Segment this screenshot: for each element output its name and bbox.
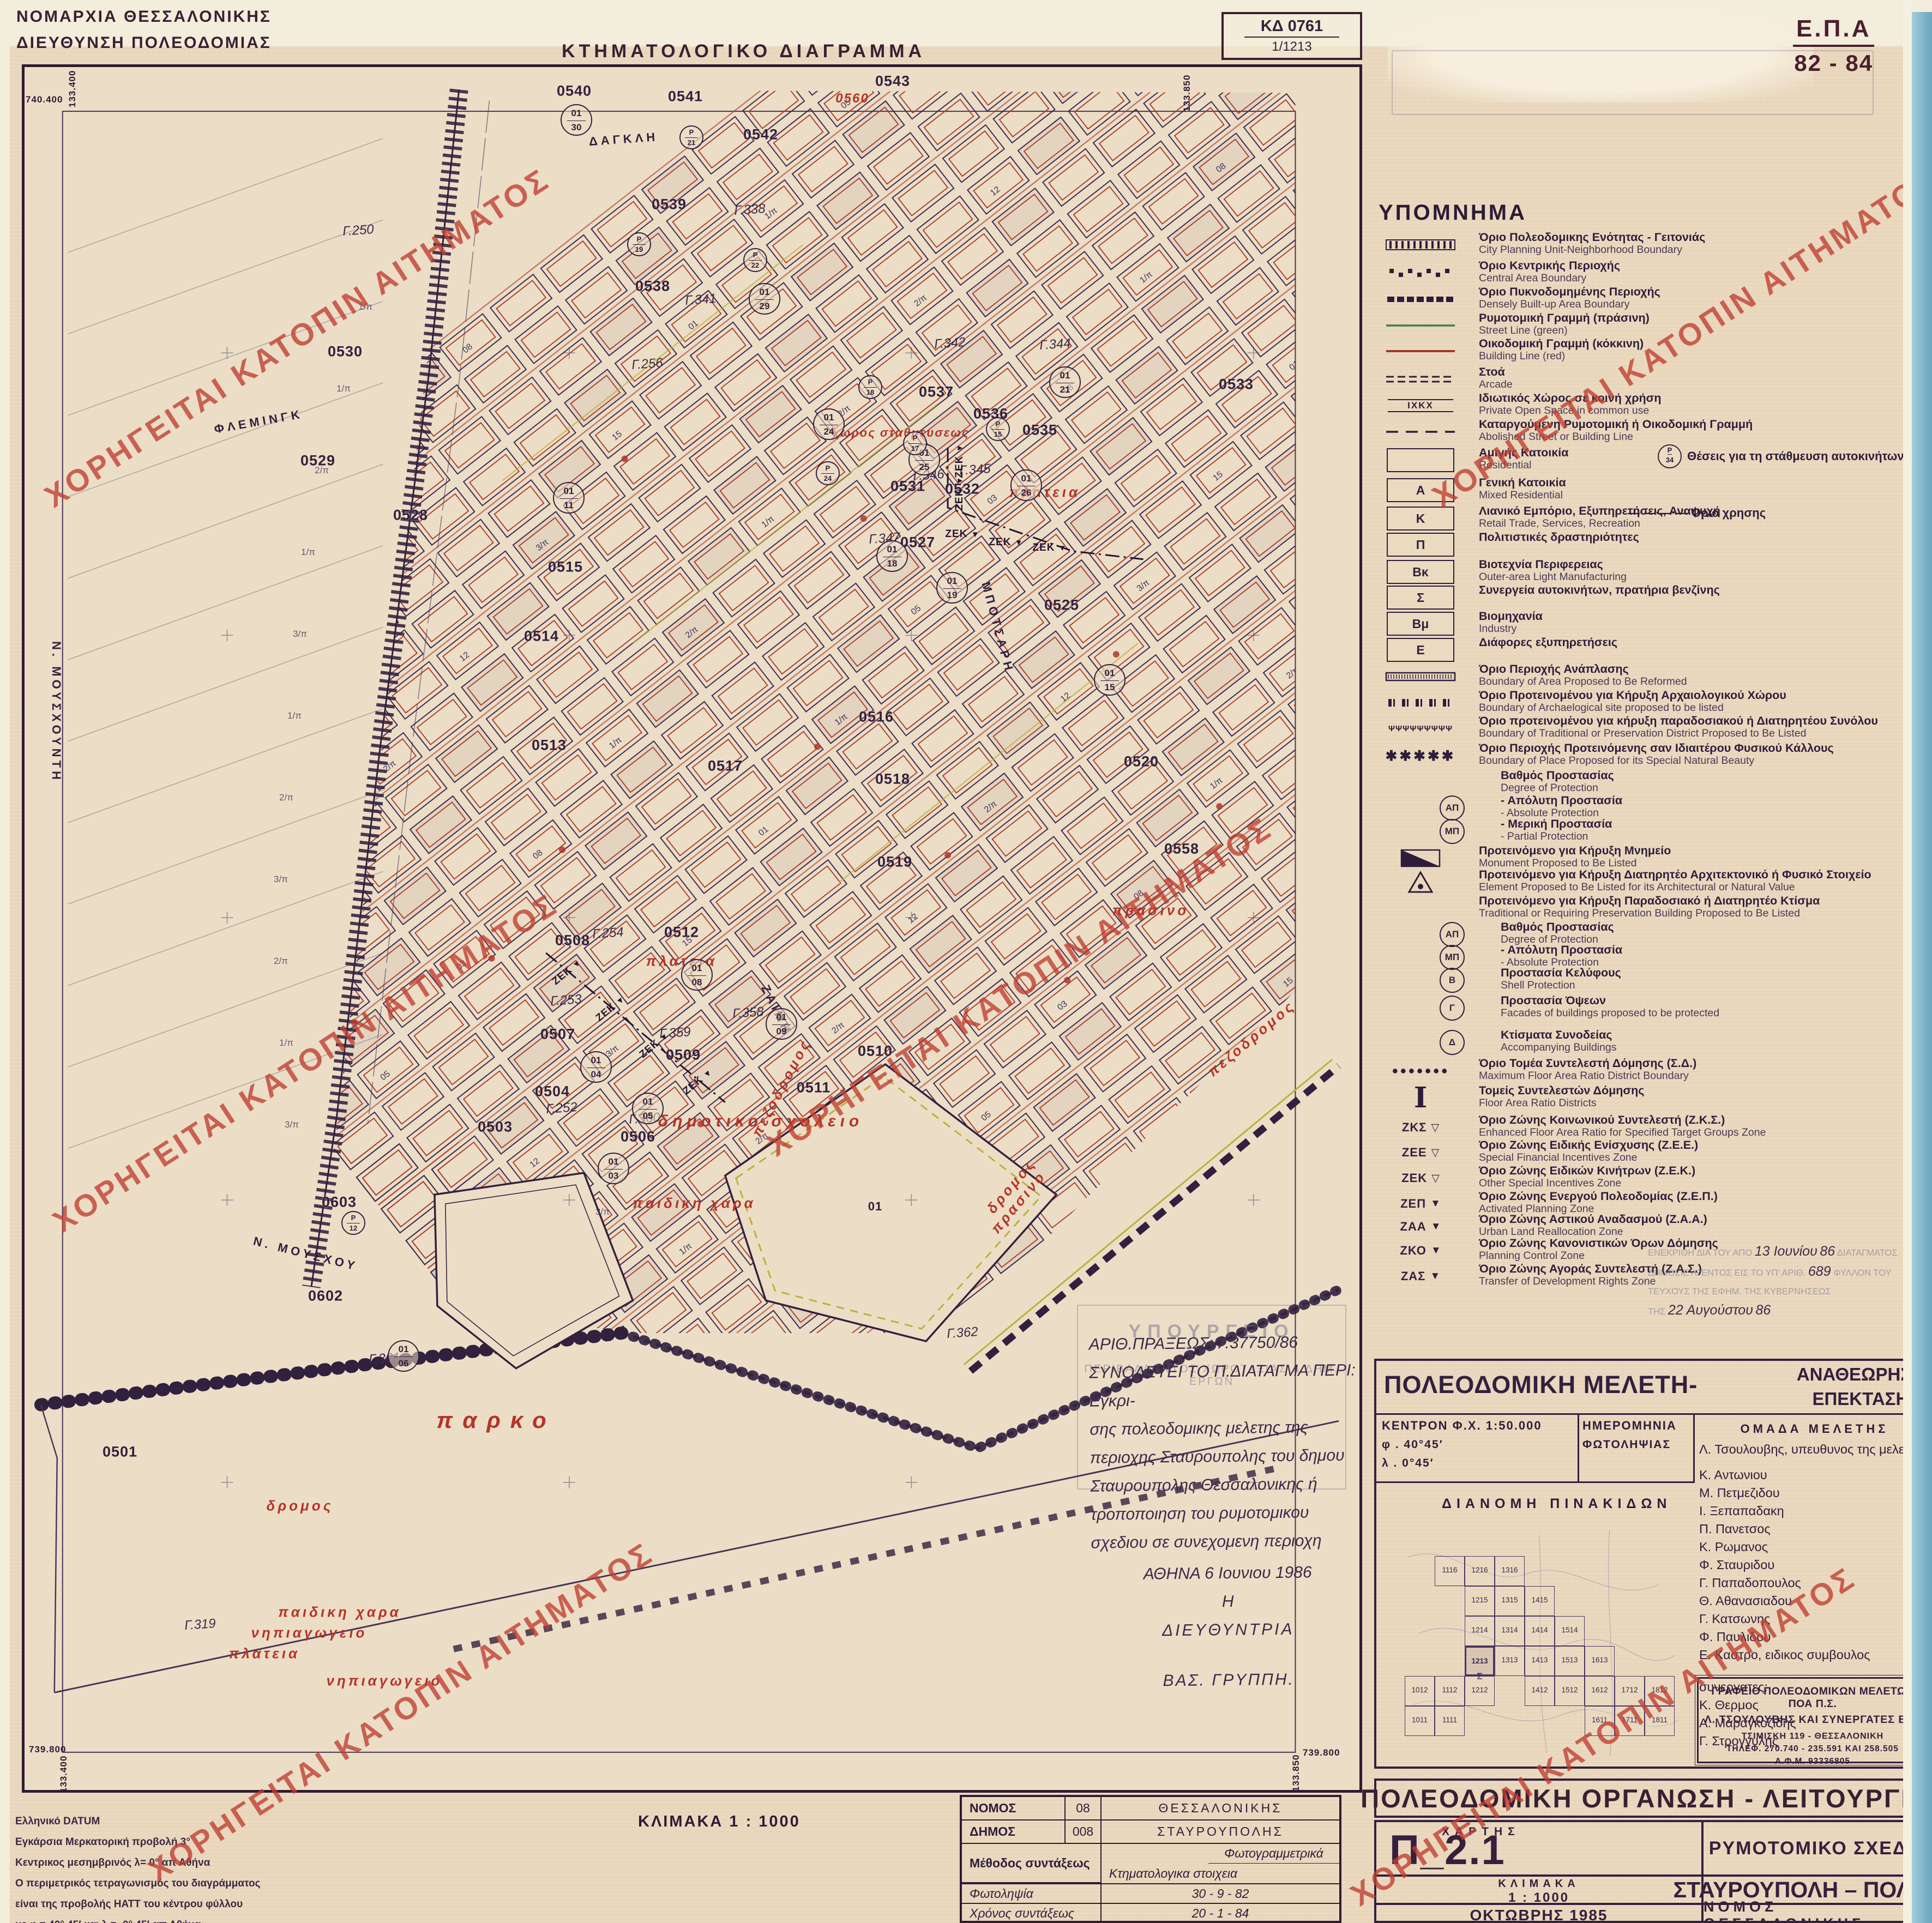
legend-symbol bbox=[1374, 665, 1467, 689]
parking-badge-top: P bbox=[864, 377, 877, 388]
legend-english-text: Building Line (red) bbox=[1479, 350, 1915, 363]
study-phi: φ . 40°45′ bbox=[1382, 1438, 1572, 1451]
red-map-label: χωρος σταθμευσεως bbox=[833, 426, 970, 440]
legend-greek-text: Γενική Κατοικία bbox=[1479, 476, 1915, 489]
legend-symbol bbox=[1374, 261, 1467, 285]
parking-badge-top: P bbox=[821, 463, 834, 474]
far-ratio-badge-top: 01 bbox=[587, 1053, 605, 1068]
parking-badge-bottom: 19 bbox=[628, 245, 650, 254]
corner-coord-bottom-northing-right: 739.800 bbox=[1303, 1747, 1340, 1758]
block-label: 0512 bbox=[664, 924, 699, 941]
agency-line-1: ΝΟΜΑΡΧΙΑ ΘΕΣΣΑΛΟΝΙΚΗΣ bbox=[16, 8, 272, 26]
block-label: 0503 bbox=[478, 1119, 513, 1136]
index-tile: 1111 bbox=[1435, 1706, 1465, 1736]
corner-coord-left-easting: 133.400 bbox=[67, 70, 78, 107]
far-ratio-badge-bottom: 08 bbox=[682, 976, 712, 989]
parking-badge-top: P bbox=[908, 433, 922, 444]
agency-line-2: ΔΙΕΥΘΥΝΣΗ ΠΟΛΕΟΔΟΜΙΑΣ bbox=[16, 34, 272, 52]
legend-greek-text: Κτίσματα Συνοδείας bbox=[1501, 1028, 1932, 1041]
kd-sub-number: 1/1213 bbox=[1224, 38, 1360, 58]
legend-symbol: ΖΚΣ▽ bbox=[1374, 1116, 1467, 1140]
index-tile: 1612 bbox=[1585, 1676, 1615, 1706]
legend-circle-symbol: ΑΠ bbox=[1440, 922, 1465, 947]
far-ratio-badge-top: 01 bbox=[688, 961, 706, 976]
map-frame: 1/π2/π3/π0105082/π12151/π031/π2/π3/π0105… bbox=[22, 64, 1362, 1793]
surveyor-g-number: Γ.256 bbox=[631, 355, 663, 373]
legend-zone-label: ΖΑΣ bbox=[1401, 1269, 1426, 1283]
legend-circle-symbol: Γ bbox=[1440, 996, 1465, 1021]
far-ratio-badge-top: 01 bbox=[1100, 666, 1119, 681]
legend-entry-text: Όριο προτεινομένου για κήρυξη παραδοσιακ… bbox=[1479, 714, 1915, 740]
surveyor-g-number: Γ.319 bbox=[184, 1616, 216, 1633]
far-ratio-badge-bottom: 18 bbox=[877, 557, 907, 570]
legend-entry-text: Προστασία ΌψεωνFacades of buildings prop… bbox=[1501, 994, 1932, 1020]
parking-badge: P15 bbox=[986, 417, 1010, 441]
legend-greek-text: Βαθμός Προστασίας bbox=[1501, 920, 1932, 933]
tile-index-label: ΔΙΑΝΟΜΗ ΠΙΝΑΚΙΔΩΝ bbox=[1442, 1496, 1671, 1512]
school-parcel-number: 01 bbox=[868, 1199, 882, 1214]
legend-greek-text: Ιδιωτικός Χώρος σε κοινή χρήση bbox=[1479, 391, 1915, 405]
legend-zone-label: ΖΑΑ bbox=[1400, 1220, 1426, 1234]
legend-circle-symbol: Δ bbox=[1440, 1030, 1465, 1055]
team-member: Φ. Σταυριδου bbox=[1699, 1556, 1932, 1574]
zek-zone-mark: ΖΕΚ ▼ bbox=[550, 956, 585, 987]
legend-greek-text: Τομείς Συντελεστών Δόμησης bbox=[1479, 1084, 1915, 1097]
legend-symbol: ΙΧΚΧ bbox=[1374, 394, 1467, 418]
far-ratio-badge-top: 01 bbox=[604, 1155, 623, 1170]
legend-greek-text: Όριο Ζώνης Ειδικών Κινήτρων (Ζ.Ε.Κ.) bbox=[1479, 1164, 1915, 1177]
info-photo-value: 30 - 9 - 82 bbox=[1102, 1883, 1339, 1903]
block-label: 0501 bbox=[103, 1444, 137, 1461]
far-ratio-badge-top: 01 bbox=[820, 411, 838, 425]
block-label: 0602 bbox=[308, 1288, 343, 1305]
block-label: 0540 bbox=[557, 83, 592, 100]
legend-greek-text: Βιοτεχνία Περιφερειας bbox=[1479, 558, 1915, 571]
surveyor-g-number: Γ.342 bbox=[934, 335, 966, 352]
parking-icon-number: 34 bbox=[1666, 456, 1674, 464]
legend-title: ΥΠΟΜΝΗΜΑ bbox=[1379, 201, 1527, 225]
block-label: 0515 bbox=[548, 559, 583, 576]
red-map-label: παρκο bbox=[436, 1407, 556, 1433]
date-cell: ΟΚΤΩΒΡΗΣ 1985 bbox=[1376, 1905, 1704, 1923]
legend-greek-text: Όριο Ζώνης Αστικού Αναδασμού (Ζ.Α.Α.) bbox=[1479, 1213, 1915, 1226]
legend-english-text: Facades of buildings proposed to be prot… bbox=[1501, 1007, 1932, 1020]
legend-english-text: Mixed Residential bbox=[1479, 489, 1915, 502]
legend-english-text: Maximum Floor Area Ratio District Bounda… bbox=[1479, 1070, 1915, 1082]
office-line: ΓΡΑΦΕΙΟ ΠΟΛΕΟΔΟΜΙΚΩΝ ΜΕΛΕΤΩΝ ΠΟΑ Π.Σ. bbox=[1699, 1685, 1927, 1710]
parking-badge-top: P bbox=[633, 234, 646, 245]
street-name: Ν. ΜΟΥΣΧΟΥΝΤΗ bbox=[49, 641, 63, 783]
legend-circle-symbol: ΜΠ bbox=[1440, 819, 1465, 844]
legend-symbol bbox=[1374, 896, 1467, 920]
legend-entry-text: Όριο Ζώνης Κοινωνικού Συντελεστή (Ζ.Κ.Σ.… bbox=[1479, 1113, 1915, 1139]
legend-entry-text: Όριο Πυκνοδομημένης ΠεριοχήςDensely Buil… bbox=[1479, 285, 1915, 311]
legend-entry-text: Όριο Περιοχής ΑνάπλασηςBoundary of Area … bbox=[1479, 662, 1915, 688]
far-ratio-badge-bottom: 09 bbox=[767, 1025, 796, 1038]
parking-icon-letter: P bbox=[1668, 446, 1672, 455]
far-ratio-badge-bottom: 25 bbox=[910, 461, 939, 474]
surveyor-g-number: Γ.362 bbox=[946, 1324, 978, 1342]
legend-box-symbol: Βκ bbox=[1387, 560, 1454, 584]
red-map-label: πλατεια bbox=[229, 1645, 300, 1662]
index-tile: 1415 bbox=[1525, 1586, 1555, 1616]
far-ratio-badge: 0115 bbox=[1094, 664, 1126, 696]
legend-symbol: Δ bbox=[1406, 1030, 1498, 1054]
zek-arrow-icon: ▼ bbox=[615, 994, 627, 1007]
stamp-handwritten-year2: 86 bbox=[1756, 1303, 1771, 1318]
study-header: ΠΟΛΕΟΔΟΜΙΚΗ ΜΕΛΕΤΗ- ΑΝΑΘΕΩΡΗΣΗ ΕΠΕΚΤΑΣΗ bbox=[1376, 1361, 1930, 1415]
index-tile: 1315 bbox=[1495, 1586, 1525, 1616]
kd-number: ΚΔ 0761 bbox=[1244, 17, 1339, 38]
parking-badge: P22 bbox=[743, 248, 767, 272]
legend-entry-text: Όριο Περιοχής Προτεινόμενης σαν Ιδιαιτέρ… bbox=[1479, 742, 1915, 767]
legend-entry-text: Προτεινόμενο για Κήρυξη Διατηρητέο Αρχιτ… bbox=[1479, 868, 1915, 894]
parcel-mark: 3/π bbox=[293, 629, 307, 640]
zek-zone-mark: ΖΕΚ ▼ bbox=[954, 476, 966, 510]
legend-greek-text: Όριο Περιοχής Ανάπλασης bbox=[1479, 662, 1915, 676]
parking-badge-top: P bbox=[685, 128, 698, 138]
block-label: 0514 bbox=[524, 628, 559, 645]
legend-box-symbol: Σ bbox=[1387, 586, 1454, 610]
parking-badge-bottom: 12 bbox=[342, 1223, 364, 1233]
legend-entry-text: ΒιομηχανίαIndustry bbox=[1479, 610, 1915, 635]
block-label: 0507 bbox=[540, 1026, 575, 1043]
index-tile: 1314 bbox=[1495, 1616, 1525, 1646]
legend-english-text: Boundary of Place Proposed for its Speci… bbox=[1479, 755, 1915, 767]
legend-greek-text: Προστασία Κελύφους bbox=[1501, 966, 1932, 979]
epa-label: Ε.Π.Α bbox=[1793, 15, 1874, 47]
legend-box-symbol: Ε bbox=[1387, 638, 1454, 662]
legend-entry-text: Κτίσματα ΣυνοδείαςAccompanying Buildings bbox=[1501, 1028, 1932, 1054]
handwritten-approval-note: ΑΡΙΘ.ΠΡΑΞΕΩΣ: Γ.37750/86 ΣΥΝΟΔΕΥΕΙ ΤΟ Π.… bbox=[1089, 1328, 1365, 1696]
info-dimos-value: ΣΤΑΥΡΟΥΠΟΛΗΣ bbox=[1102, 1820, 1339, 1844]
legend-english-text: Degree of Protection bbox=[1501, 782, 1932, 794]
epa-box: Ε.Π.Α 82 - 84 bbox=[1793, 15, 1874, 76]
zek-zone-mark: ΖΕΚ ▼ bbox=[594, 993, 628, 1024]
office-line: Α.Φ.Μ. 93336805 bbox=[1699, 1757, 1927, 1767]
far-ratio-badge: 0111 bbox=[553, 482, 585, 514]
prefecture-cell: ΝΟΜΟΣ ΘΕΣΣΑΛΟΝΙΚΗΣ bbox=[1704, 1905, 1932, 1923]
office-line: ΤΣΙΜΙΣΚΗ 119 - ΘΕΣΣΑΛΟΝΙΚΗ bbox=[1699, 1732, 1927, 1741]
legend-english-text: Traditional or Requiring Preservation Bu… bbox=[1479, 907, 1915, 920]
legend-greek-text: Βιομηχανία bbox=[1479, 610, 1915, 623]
legend-zone-label: ΖΚΣ bbox=[1402, 1120, 1427, 1135]
stamp-text: ΦΥΛΛΟΝ ΤΟΥ bbox=[1833, 1268, 1891, 1278]
datum-line: με φ = 40° 45′ και λ = -0° 45′ απ Αθήνα bbox=[15, 1915, 261, 1923]
zone-arrow-icon: ▼ bbox=[1431, 1221, 1441, 1233]
stamp-handwritten-date2: 22 Αυγούστου bbox=[1668, 1303, 1753, 1318]
legend-symbol: Γ bbox=[1406, 996, 1498, 1020]
parcel-mark: 1/π bbox=[287, 710, 302, 721]
note-body: ΑΡΙΘ.ΠΡΑΞΕΩΣ: Γ.37750/86 ΣΥΝΟΔΕΥΕΙ ΤΟ Π.… bbox=[1089, 1328, 1364, 1557]
datum-line: Κεντρικος μεσημβρινός λ= 0° απ Αθήνα bbox=[15, 1853, 261, 1873]
parcel-mark: 3/π bbox=[274, 874, 288, 885]
far-ratio-badge: 0104 bbox=[580, 1051, 612, 1083]
parcel-mark: 1/π bbox=[336, 383, 351, 394]
study-date-label-2: ΦΩΤΟΛΗΨΙΑΣ bbox=[1582, 1438, 1690, 1451]
stamp-text: ΔΙΑΤΑΓΜΑΤΟΣ bbox=[1837, 1248, 1898, 1258]
zone-arrow-icon: ▼ bbox=[1431, 1245, 1441, 1257]
legend-english-text: Arcade bbox=[1479, 378, 1915, 391]
zek-zone-mark: ΖΕΚ ▼ bbox=[989, 536, 1023, 548]
far-ratio-badge-top: 01 bbox=[559, 484, 578, 499]
legend-greek-text: Προτεινόμενο για Κήρυξη Διατηρητέο Αρχιτ… bbox=[1479, 868, 1915, 881]
zek-zone-mark: ΖΕΚ ▼ bbox=[1032, 542, 1067, 554]
legend-greek-text: Όριο Ζώνης Ειδικής Ενίσχυσης (Ζ.Ε.Ε.) bbox=[1479, 1138, 1915, 1152]
far-ratio-badge: 0105 bbox=[632, 1093, 664, 1124]
index-tile: 1413 bbox=[1525, 1646, 1555, 1676]
parking-badge-top: P bbox=[749, 250, 762, 261]
parking-icon: P 34 bbox=[1658, 444, 1682, 468]
block-label: 0530 bbox=[328, 343, 363, 360]
note-place-date: ΑΘΗΝΑ 6 Ιουνιου 1986 bbox=[1091, 1558, 1364, 1589]
legend-entry-text: Γενική ΚατοικίαMixed Residential bbox=[1479, 476, 1915, 502]
index-tile: 1213Σ bbox=[1465, 1646, 1495, 1676]
scanned-map-sheet: ΝΟΜΑΡΧΙΑ ΘΕΣΣΑΛΟΝΙΚΗΣ ΔΙΕΥΘΥΝΣΗ ΠΟΛΕΟΔΟΜ… bbox=[0, 0, 1932, 1923]
legend-box-symbol: Π bbox=[1387, 533, 1454, 557]
stamp-text: ΔΗΜΟΣΙΕΥΘΕΝΤΟΣ ΕΙΣ ΤΟ ΥΠ' ΑΡΙΘ. bbox=[1648, 1268, 1805, 1278]
block-label: 0519 bbox=[877, 854, 912, 871]
parking-badge: P19 bbox=[627, 232, 651, 256]
team-member: Λ. Τσουλουβης, υπευθυνος της μελετης bbox=[1699, 1440, 1932, 1458]
legend-english-text: - Partial Protection bbox=[1501, 830, 1932, 843]
legend-symbol: I bbox=[1374, 1086, 1467, 1110]
zek-arrow-icon: ▼ bbox=[955, 443, 965, 452]
legend-english-text: Boundary of Archaelogical site proposed … bbox=[1479, 702, 1915, 714]
legend-english-text: Boundary of Traditional or Preservation … bbox=[1479, 727, 1915, 740]
street-name: ΦΛΕΜΙΝΓΚ bbox=[213, 407, 304, 437]
legend-symbol bbox=[1374, 314, 1467, 337]
stamp-text: ΕΝΕΚΡΙΘΗ ΔΙΑ ΤΟΥ ΑΠΟ bbox=[1648, 1248, 1752, 1258]
index-tile: 1514 bbox=[1555, 1616, 1585, 1646]
index-tile: 1216 bbox=[1465, 1556, 1495, 1586]
legend-symbol: ΑΠ bbox=[1406, 796, 1498, 820]
index-tile: 1212 bbox=[1465, 1676, 1495, 1706]
legend-entry-text: Βαθμός ΠροστασίαςDegree of Protection bbox=[1501, 920, 1932, 946]
legend-entry-text: - Απόλυτη Προστασία- Absolute Protection bbox=[1501, 943, 1932, 969]
index-tile: 1414 bbox=[1525, 1616, 1555, 1646]
office-line: Λ. ΤΣΟΥΛΟΥΒΗΣ ΚΑΙ ΣΥΝΕΡΓΑΤΕΣ Ε.Ε. bbox=[1699, 1714, 1927, 1726]
legend-entry-text: Όριο Ζώνης Ειδικής Ενίσχυσης (Ζ.Ε.Ε.)Spe… bbox=[1479, 1138, 1915, 1164]
legend-symbol: ΜΠ bbox=[1406, 819, 1498, 843]
scale-cell: ΚΛΙΜΑΚΑ 1 : 1000 bbox=[1376, 1877, 1704, 1905]
legend-symbol: ΖΑΑ▼ bbox=[1374, 1215, 1467, 1239]
team-member: Μ. Πετμεζιδου bbox=[1699, 1484, 1932, 1502]
zek-arrow-icon: ▼ bbox=[955, 476, 965, 485]
zek-arrow-icon: ▼ bbox=[971, 530, 980, 539]
legend-symbol: Βμ bbox=[1374, 612, 1467, 636]
corner-coord-bottom-northing-left: 739.800 bbox=[29, 1744, 66, 1755]
block-label: 0509 bbox=[666, 1047, 701, 1064]
block-label: 0520 bbox=[1124, 753, 1159, 770]
legend-entry-text: - Απόλυτη Προστασία- Absolute Protection bbox=[1501, 794, 1932, 819]
legend-english-text: Central Area Boundary bbox=[1479, 272, 1915, 285]
corner-coord-top-northing: 740.400 bbox=[26, 94, 63, 105]
legend-entry-text: Όριο Κεντρικής ΠεριοχήςCentral Area Boun… bbox=[1479, 259, 1915, 285]
far-ratio-badge-bottom: 29 bbox=[750, 300, 779, 313]
legend-symbol: ✱✱✱✱✱ bbox=[1374, 744, 1467, 768]
plan-type-cell: ΡΥΜΟΤΟΜΙΚΟ ΣΧΕΔΙΟ bbox=[1704, 1822, 1932, 1877]
far-ratio-badge-top: 01 bbox=[755, 285, 774, 300]
far-ratio-badge-bottom: 11 bbox=[554, 499, 583, 512]
legend-english-text: Element Proposed to Be Listed for its Ar… bbox=[1479, 881, 1915, 894]
legend-symbol: Π bbox=[1374, 533, 1467, 557]
legend-symbol: ΑΠ bbox=[1406, 923, 1498, 947]
far-ratio-badge: 0109 bbox=[766, 1008, 797, 1040]
legend-symbol bbox=[1374, 367, 1467, 391]
legend-english-text: Special Financial Incentives Zone bbox=[1479, 1152, 1915, 1164]
parking-note-text: Θέσεις για τη στάθμευση αυτοκινήτων bbox=[1687, 449, 1904, 463]
legend-symbol bbox=[1374, 287, 1467, 311]
stamp-handwritten-date: 13 Ιουνίου bbox=[1755, 1244, 1817, 1259]
legend-english-text: Other Special Incentives Zone bbox=[1479, 1177, 1915, 1190]
red-map-label: παιδικη χαρα bbox=[278, 1604, 401, 1621]
red-map-label: πεζοδρομος bbox=[1205, 997, 1299, 1080]
block-label: 0517 bbox=[708, 758, 743, 775]
legend-entry-text: Προτεινόμενο για Κήρυξη ΜνημείοMonument … bbox=[1479, 844, 1915, 870]
index-tile: 1116 bbox=[1435, 1556, 1465, 1586]
legend-symbol: ΖΕΚ▽ bbox=[1374, 1166, 1467, 1190]
far-ratio-badge-top: 01 bbox=[567, 106, 586, 121]
legend-symbol: Βκ bbox=[1374, 560, 1467, 584]
block-label: 0528 bbox=[393, 507, 428, 524]
study-lambda: λ . 0°45′ bbox=[1382, 1457, 1572, 1470]
block-label: 0543 bbox=[875, 73, 910, 90]
surveyor-g-number: Γ.253 bbox=[550, 992, 582, 1009]
surveyor-g-number: Γ.250 bbox=[342, 222, 374, 239]
zek-zone-mark: ΖΕΚ ▼ bbox=[954, 443, 966, 478]
parking-badge: P21 bbox=[679, 125, 703, 149]
parking-badge: P17 bbox=[903, 431, 927, 455]
legend-entry-text: Βαθμός ΠροστασίαςDegree of Protection bbox=[1501, 769, 1932, 794]
zek-zone-mark: ΖΕΚ ▼ bbox=[945, 528, 979, 540]
scale-label: ΚΛΙΜΑΚΑ bbox=[1376, 1878, 1701, 1890]
block-label: 0518 bbox=[875, 771, 910, 788]
legend-greek-text: Συνεργεία αυτοκινήτων, πρατήρια βενζίνης bbox=[1479, 583, 1915, 596]
zek-arrow-icon: ▼ bbox=[571, 958, 583, 970]
parking-badge-top: P bbox=[347, 1213, 360, 1223]
legend-box-symbol bbox=[1387, 448, 1454, 472]
legend-symbol: ΖΕΠ▼ bbox=[1374, 1192, 1467, 1216]
parking-badge-bottom: 17 bbox=[904, 444, 926, 453]
index-tile: 1112 bbox=[1435, 1676, 1465, 1706]
survey-info-table: ΝΟΜΟΣ 08 ΘΕΣΣΑΛΟΝΙΚΗΣ ΔΗΜΟΣ 008 ΣΤΑΥΡΟΥΠ… bbox=[960, 1795, 1341, 1923]
info-compile-label: Χρόνος συντάξεως bbox=[962, 1906, 1074, 1921]
info-dimos-code: 008 bbox=[1066, 1820, 1102, 1844]
parking-badge-bottom: 18 bbox=[859, 388, 881, 397]
legend-greek-text: Βαθμός Προστασίας bbox=[1501, 769, 1932, 782]
block-label: 0513 bbox=[532, 737, 567, 754]
red-map-label: 0560 bbox=[835, 91, 869, 106]
legend-symbol: Ε bbox=[1374, 638, 1467, 662]
study-center-cell: ΚΕΝΤΡΟΝ Φ.Χ. 1:50.000 φ . 40°45′ λ . 0°4… bbox=[1376, 1413, 1579, 1483]
legend-symbol: ΜΠ bbox=[1406, 945, 1498, 969]
legend-circle-symbol: ΜΠ bbox=[1440, 945, 1465, 970]
far-ratio-badge-top: 01 bbox=[883, 542, 901, 557]
far-ratio-badge: 0118 bbox=[876, 540, 908, 572]
legend-greek-text: Όριο Πυκνοδομημένης Περιοχής bbox=[1479, 285, 1915, 298]
legend-symbol: ΖΑΣ▼ bbox=[1374, 1264, 1467, 1288]
block-label: 0537 bbox=[919, 384, 954, 401]
legend-circle-symbol: ΑΠ bbox=[1440, 795, 1465, 821]
block-label: 0533 bbox=[1219, 376, 1254, 393]
legend-entry-text: Όριο Ζώνης Ειδικών Κινήτρων (Ζ.Ε.Κ.)Othe… bbox=[1479, 1164, 1915, 1190]
far-ratio-badge: 0121 bbox=[1049, 366, 1081, 398]
zone-arrow-icon: ▼ bbox=[1430, 1198, 1441, 1210]
team-member: Κ. Αντωνιου bbox=[1699, 1466, 1932, 1484]
far-ratio-badge: 0124 bbox=[813, 408, 845, 440]
block-label: 0539 bbox=[652, 196, 687, 213]
far-ratio-badge-bottom: 24 bbox=[814, 425, 844, 438]
street-name: ΔΑΓΚΛΗ bbox=[588, 130, 659, 149]
legend-entry-text: ΣτοάArcade bbox=[1479, 365, 1915, 391]
pentagon-parcel-mark: 3/π bbox=[595, 1207, 610, 1217]
legend-entry-text: Όριο Προτεινομένου για Κήρυξη Αρχαιολογι… bbox=[1479, 689, 1915, 714]
far-ratio-badge-top: 01 bbox=[943, 574, 961, 589]
parcel-mark: 2/π bbox=[279, 792, 293, 803]
legend-entry-text: Όριο Ζώνης Αστικού Αναδασμού (Ζ.Α.Α.)Urb… bbox=[1479, 1213, 1915, 1238]
far-ratio-badge: 0106 bbox=[388, 1340, 419, 1372]
zone-arrow-icon: ▽ bbox=[1431, 1122, 1439, 1134]
legend-symbol bbox=[1374, 691, 1467, 715]
parcel-mark: 2/π bbox=[315, 465, 329, 476]
note-role: ΔΙΕΥΘΥΝΤΡΙΑ bbox=[1092, 1614, 1365, 1645]
zone-arrow-icon: ▽ bbox=[1431, 1147, 1440, 1159]
parking-badge: P24 bbox=[816, 461, 840, 485]
index-tile: 1316 bbox=[1495, 1556, 1525, 1586]
zek-arrow-icon: ▼ bbox=[1015, 538, 1024, 547]
study-date-label-1: ΗΜΕΡΟΜΗΝΙΑ bbox=[1582, 1419, 1690, 1433]
legend-greek-text: Όριο προτεινομένου για κήρυξη παραδοσιακ… bbox=[1479, 714, 1915, 727]
far-ratio-badge-bottom: 21 bbox=[1050, 383, 1080, 396]
info-dimos-label: ΔΗΜΟΣ bbox=[962, 1824, 1015, 1839]
legend-zone-label: ΖΕΠ bbox=[1400, 1197, 1426, 1211]
index-tile: 1011 bbox=[1405, 1706, 1435, 1736]
legend-greek-text: Διάφορες εξυπηρετήσεις bbox=[1479, 636, 1915, 649]
far-ratio-badge-bottom: 04 bbox=[581, 1068, 611, 1081]
legend-zone-label: ΖΕΕ bbox=[1402, 1146, 1427, 1160]
far-ratio-badge-bottom: 30 bbox=[562, 121, 591, 134]
far-ratio-badge: 0126 bbox=[1010, 469, 1042, 501]
block-label: 0525 bbox=[1044, 597, 1079, 614]
legend-zone-label: ΖΕΚ bbox=[1401, 1171, 1427, 1185]
legend-symbol: Σ bbox=[1374, 586, 1467, 610]
team-member: Π. Πανετσος bbox=[1699, 1520, 1932, 1538]
legend-greek-text: Προστασία Όψεων bbox=[1501, 994, 1932, 1007]
legend-greek-text: Όριο Περιοχής Προτεινόμενης σαν Ιδιαιτέρ… bbox=[1479, 742, 1915, 755]
legend-english-text: Accompanying Buildings bbox=[1501, 1041, 1932, 1054]
parcel-mark: 3/π bbox=[285, 1119, 299, 1130]
info-nomos-value: ΘΕΣΣΑΛΟΝΙΚΗΣ bbox=[1102, 1797, 1339, 1820]
office-line: ΤΗΛΕΦ. 270.740 - 235.591 ΚΑΙ 258.505 bbox=[1699, 1744, 1927, 1754]
legend-greek-text: - Μερική Προστασία bbox=[1501, 817, 1932, 830]
legend-entry-text: Τομείς Συντελεστών ΔόμησηςFloor Area Rat… bbox=[1479, 1084, 1915, 1110]
legend-greek-text: Προτεινόμενο για Κήρυξη Μνημείο bbox=[1479, 844, 1915, 857]
legend-greek-text: Πολιτιστικές δραστηριότητες bbox=[1479, 531, 1915, 544]
epa-years: 82 - 84 bbox=[1793, 47, 1874, 76]
surveyor-g-number: Γ.252 bbox=[545, 1100, 577, 1117]
datum-line: είναι της προβολής ΗΑΤΤ του κέντρου φύλλ… bbox=[15, 1894, 261, 1915]
far-ratio-badge: 0130 bbox=[561, 104, 592, 136]
red-map-label: δρομος bbox=[267, 1498, 334, 1515]
study-team-label: ΟΜΑΔΑ ΜΕΛΕΤΗΣ bbox=[1695, 1422, 1932, 1436]
legend-symbol bbox=[1406, 771, 1498, 795]
corner-coord-right-easting-bottom: 133.850 bbox=[1291, 1755, 1302, 1792]
legend-english-text: Enhanced Floor Area Ratio for Specified … bbox=[1479, 1126, 1915, 1139]
parking-badge: P12 bbox=[341, 1211, 365, 1235]
red-map-label: νηπιαγωγειο bbox=[251, 1625, 368, 1642]
block-label: 0504 bbox=[535, 1083, 570, 1100]
